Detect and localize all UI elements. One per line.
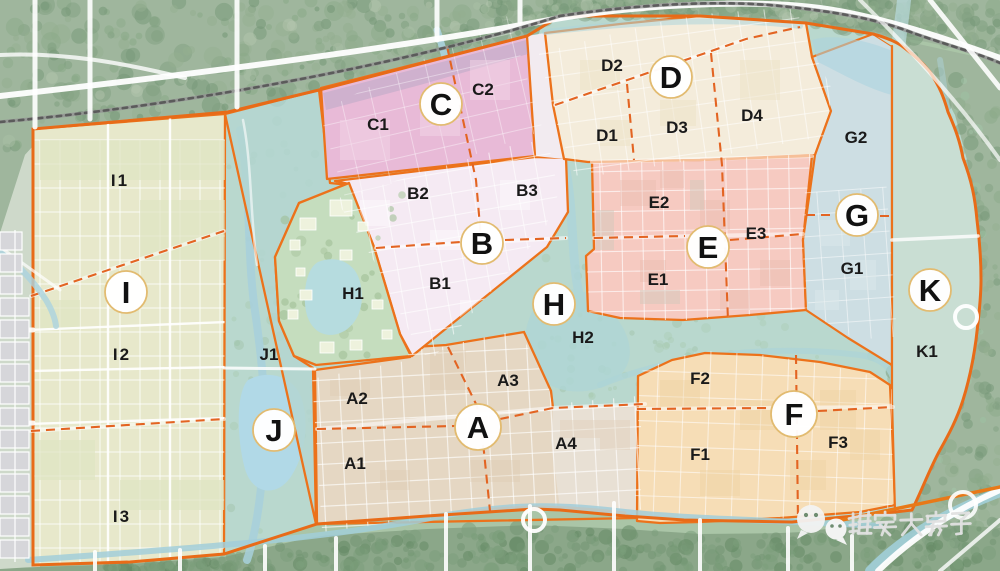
svg-text:E: E	[698, 230, 719, 265]
svg-text:H: H	[543, 287, 565, 322]
svg-text:B1: B1	[429, 274, 451, 293]
svg-text:K: K	[919, 273, 942, 308]
svg-text:G2: G2	[845, 128, 868, 147]
svg-text:F: F	[785, 397, 804, 432]
svg-text:D4: D4	[741, 106, 763, 125]
svg-text:I2: I2	[113, 345, 131, 364]
svg-text:D2: D2	[601, 56, 623, 75]
svg-text:I: I	[122, 275, 131, 310]
svg-text:H2: H2	[572, 328, 594, 347]
svg-text:J: J	[265, 413, 282, 448]
svg-text:B2: B2	[407, 184, 429, 203]
svg-text:C2: C2	[472, 80, 494, 99]
svg-text:A2: A2	[346, 389, 368, 408]
svg-text:D3: D3	[666, 118, 688, 137]
svg-text:D: D	[660, 60, 682, 95]
svg-text:A4: A4	[555, 434, 577, 453]
svg-text:A3: A3	[497, 371, 519, 390]
svg-text:K1: K1	[916, 342, 938, 361]
svg-text:A: A	[467, 410, 489, 445]
svg-text:B3: B3	[516, 181, 538, 200]
svg-text:G1: G1	[841, 259, 864, 278]
svg-text:I3: I3	[113, 507, 131, 526]
svg-text:A1: A1	[344, 454, 366, 473]
svg-text:E3: E3	[746, 224, 767, 243]
svg-text:B: B	[471, 226, 493, 261]
svg-text:I1: I1	[111, 171, 129, 190]
svg-text:D1: D1	[596, 126, 618, 145]
svg-text:F1: F1	[690, 445, 710, 464]
svg-text:C1: C1	[367, 115, 389, 134]
svg-text:E1: E1	[648, 270, 669, 289]
svg-text:F3: F3	[828, 433, 848, 452]
svg-text:E2: E2	[649, 193, 670, 212]
svg-text:C: C	[430, 87, 452, 122]
svg-text:H1: H1	[342, 284, 364, 303]
svg-text:J1: J1	[260, 345, 279, 364]
svg-text:F2: F2	[690, 369, 710, 388]
svg-text:G: G	[845, 198, 869, 233]
